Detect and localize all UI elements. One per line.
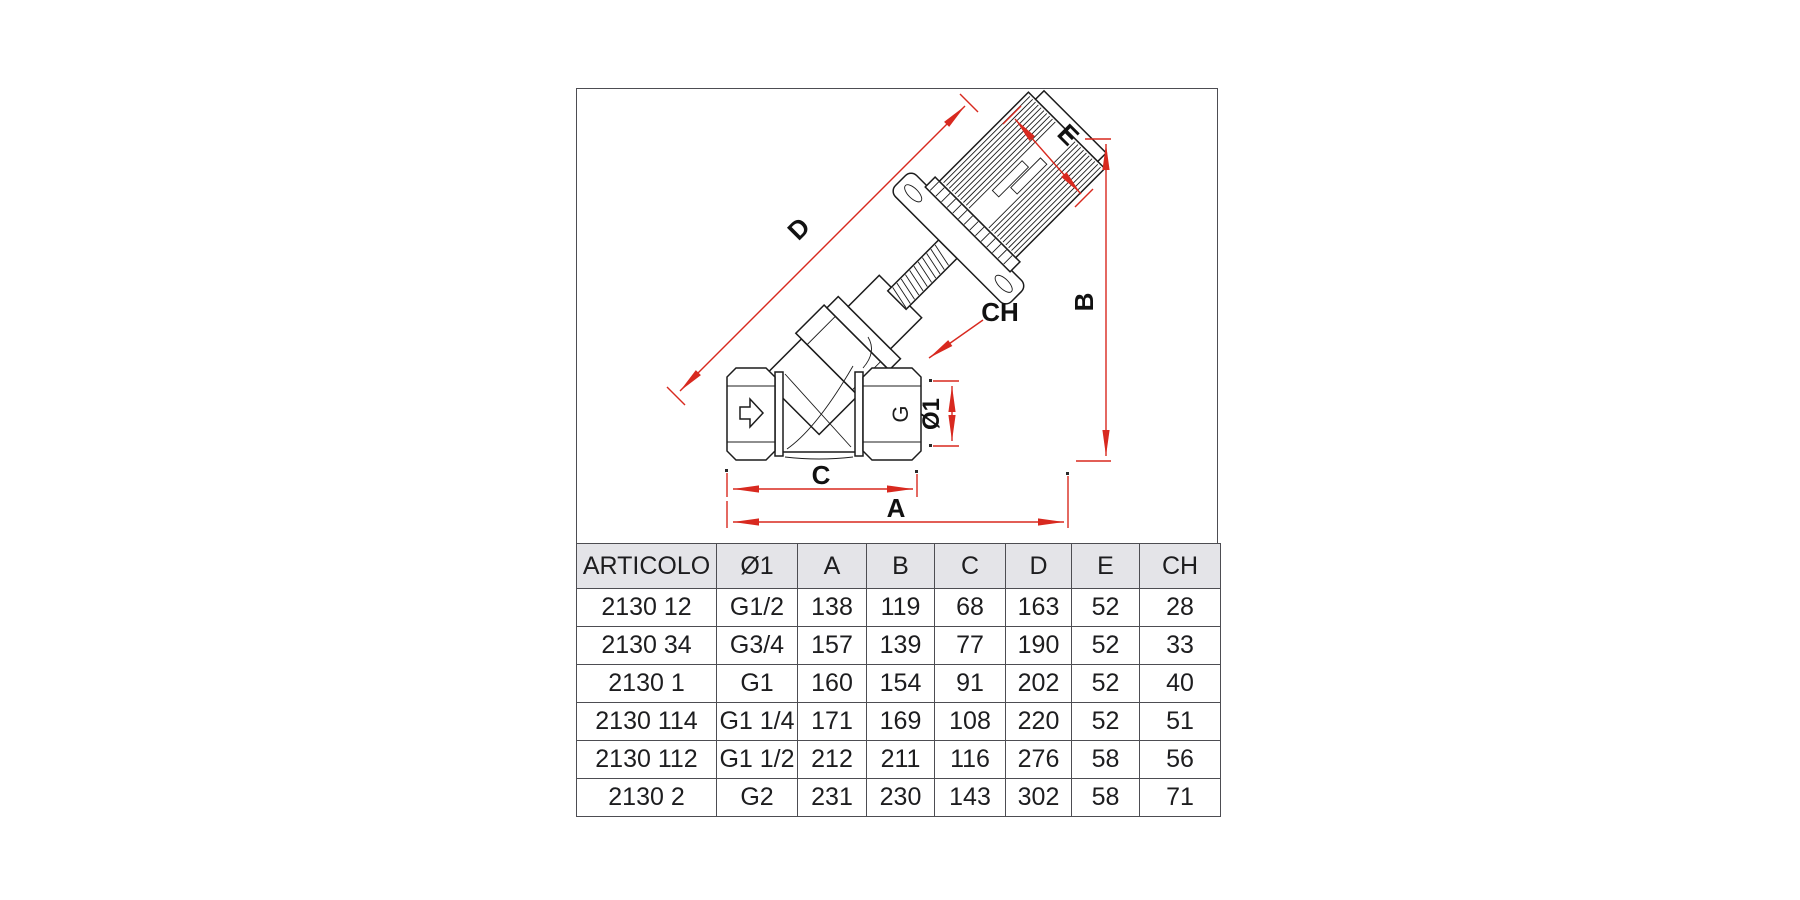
- left-hex-port: [727, 368, 775, 460]
- value-cell: 56: [1140, 741, 1221, 779]
- column-header: ARTICOLO: [577, 544, 717, 589]
- dim-label-c: C: [812, 460, 831, 490]
- table-body: 2130 12G1/21381196816352282130 34G3/4157…: [577, 589, 1221, 817]
- value-cell: 139: [867, 627, 935, 665]
- articolo-cell: 2130 1: [577, 665, 717, 703]
- dimension-a: A: [727, 472, 1069, 528]
- value-cell: 163: [1006, 589, 1072, 627]
- dim-label-d: D: [781, 211, 815, 245]
- value-cell: 190: [1006, 627, 1072, 665]
- spec-table: ARTICOLOØ1ABCDECH 2130 12G1/213811968163…: [576, 543, 1221, 817]
- value-cell: 154: [867, 665, 935, 703]
- value-cell: 230: [867, 779, 935, 817]
- value-cell: 220: [1006, 703, 1072, 741]
- valve-figure: G D E B: [576, 88, 1220, 817]
- table-header-row: ARTICOLOØ1ABCDECH: [577, 544, 1221, 589]
- value-cell: 108: [935, 703, 1006, 741]
- value-cell: 40: [1140, 665, 1221, 703]
- diagram-box: G D E B: [576, 88, 1218, 543]
- table-row: 2130 2G22312301433025871: [577, 779, 1221, 817]
- table-row: 2130 12G1/2138119681635228: [577, 589, 1221, 627]
- column-header: D: [1006, 544, 1072, 589]
- value-cell: 138: [798, 589, 867, 627]
- value-cell: G1/2: [717, 589, 798, 627]
- value-cell: 71: [1140, 779, 1221, 817]
- articolo-cell: 2130 12: [577, 589, 717, 627]
- value-cell: 52: [1072, 627, 1140, 665]
- column-header: A: [798, 544, 867, 589]
- value-cell: 28: [1140, 589, 1221, 627]
- table-row: 2130 112G1 1/22122111162765856: [577, 741, 1221, 779]
- body-mark-g: G: [888, 405, 913, 422]
- table-row: 2130 114G1 1/41711691082205251: [577, 703, 1221, 741]
- valve-diagram-svg: G D E B: [577, 89, 1217, 543]
- value-cell: 68: [935, 589, 1006, 627]
- value-cell: 33: [1140, 627, 1221, 665]
- value-cell: 143: [935, 779, 1006, 817]
- articolo-cell: 2130 2: [577, 779, 717, 817]
- column-header: E: [1072, 544, 1140, 589]
- value-cell: 276: [1006, 741, 1072, 779]
- value-cell: 169: [867, 703, 935, 741]
- column-header: B: [867, 544, 935, 589]
- column-header: C: [935, 544, 1006, 589]
- page: { "figure": { "dimension_labels": { "D":…: [0, 0, 1800, 900]
- articolo-cell: 2130 114: [577, 703, 717, 741]
- column-header: Ø1: [717, 544, 798, 589]
- value-cell: G3/4: [717, 627, 798, 665]
- value-cell: 77: [935, 627, 1006, 665]
- value-cell: 52: [1072, 665, 1140, 703]
- value-cell: G1 1/2: [717, 741, 798, 779]
- value-cell: 157: [798, 627, 867, 665]
- value-cell: 160: [798, 665, 867, 703]
- value-cell: 58: [1072, 779, 1140, 817]
- dimension-ch: CH: [929, 297, 1019, 358]
- right-collar: [855, 372, 863, 456]
- value-cell: G2: [717, 779, 798, 817]
- dim-label-a: A: [887, 493, 906, 523]
- value-cell: G1: [717, 665, 798, 703]
- value-cell: 51: [1140, 703, 1221, 741]
- value-cell: 171: [798, 703, 867, 741]
- value-cell: G1 1/4: [717, 703, 798, 741]
- dim-label-ch: CH: [981, 297, 1019, 327]
- dim-label-b: B: [1069, 293, 1099, 312]
- value-cell: 211: [867, 741, 935, 779]
- left-collar: [775, 372, 783, 456]
- value-cell: 119: [867, 589, 935, 627]
- dimension-dia1: Ø1: [918, 379, 959, 447]
- value-cell: 91: [935, 665, 1006, 703]
- value-cell: 58: [1072, 741, 1140, 779]
- value-cell: 116: [935, 741, 1006, 779]
- value-cell: 52: [1072, 589, 1140, 627]
- value-cell: 212: [798, 741, 867, 779]
- value-cell: 231: [798, 779, 867, 817]
- articolo-cell: 2130 112: [577, 741, 717, 779]
- threaded-stem: [888, 240, 957, 309]
- column-header: CH: [1140, 544, 1221, 589]
- dim-label-dia1: Ø1: [918, 398, 945, 430]
- value-cell: 302: [1006, 779, 1072, 817]
- table-row: 2130 34G3/4157139771905233: [577, 627, 1221, 665]
- value-cell: 202: [1006, 665, 1072, 703]
- dimension-c: C: [725, 460, 918, 497]
- table-row: 2130 1G1160154912025240: [577, 665, 1221, 703]
- articolo-cell: 2130 34: [577, 627, 717, 665]
- value-cell: 52: [1072, 703, 1140, 741]
